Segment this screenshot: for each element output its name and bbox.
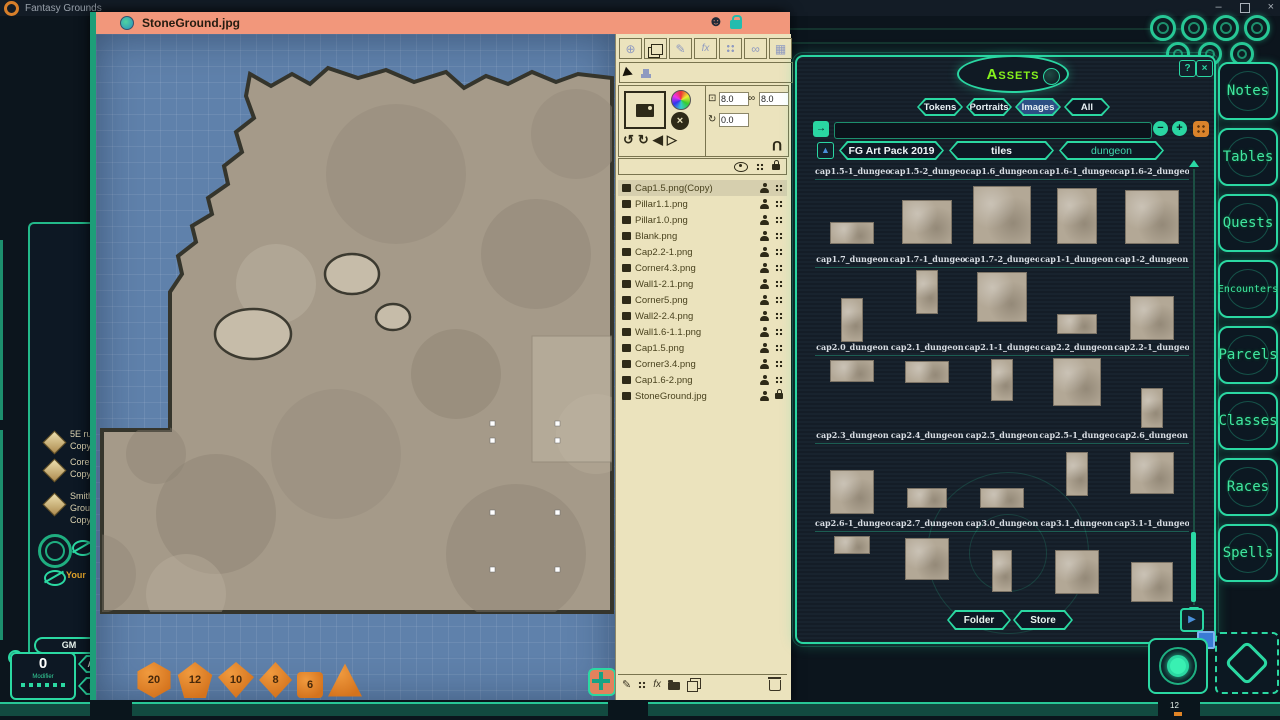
layer-grid-icon[interactable] <box>775 376 783 384</box>
stone-ground-map <box>96 34 615 704</box>
asset-label[interactable]: cap1.7_dungeon <box>815 254 890 267</box>
layer-grid-icon[interactable] <box>775 328 783 336</box>
layer-name: Cap1.5.png <box>635 343 756 354</box>
asset-label[interactable]: cap2.7_dungeon <box>890 518 965 531</box>
layer-row[interactable]: Blank.png <box>618 228 787 244</box>
grid-all-icon[interactable] <box>756 163 764 171</box>
layer-thumb-icon <box>622 312 631 320</box>
asset-thumbnail[interactable] <box>1053 358 1101 406</box>
undo-icon[interactable]: ↺ <box>623 132 634 148</box>
layer-name: Wall1.6-1.1.png <box>635 327 756 338</box>
store-button[interactable]: Store <box>1013 610 1073 630</box>
player-visible-icon[interactable] <box>760 247 769 257</box>
sidebar-button[interactable]: Races <box>1218 458 1278 516</box>
asset-label[interactable]: cap1.5-1_dungeo <box>815 166 890 179</box>
asset-thumbnail[interactable] <box>1141 388 1163 428</box>
cancel-icon[interactable]: × <box>671 112 689 130</box>
window-lock-icon[interactable] <box>730 20 742 29</box>
asset-thumbnail[interactable] <box>1066 452 1088 496</box>
layer-name: Pillar1.1.png <box>635 199 756 210</box>
layer-grid-icon[interactable] <box>775 184 783 192</box>
pointer-tool-icon[interactable] <box>623 66 635 78</box>
asset-thumbnail[interactable] <box>1057 314 1097 334</box>
asset-label[interactable]: cap1.6_dungeon <box>965 166 1040 179</box>
asset-tab[interactable]: All <box>1064 98 1110 116</box>
grid-tool-icon[interactable]: ▦ <box>769 38 792 59</box>
height-input[interactable] <box>759 92 789 106</box>
layer-grid-icon[interactable] <box>775 360 783 368</box>
sidebar-button[interactable]: Encounters <box>1218 260 1278 318</box>
layer-row[interactable]: Cap2.2-1.png <box>618 244 787 260</box>
layer-thumb-icon <box>622 392 631 400</box>
delete-layer-icon[interactable] <box>769 680 781 691</box>
asset-thumbnail[interactable] <box>1125 190 1179 244</box>
asset-label[interactable]: cap1.5-2_dungeo <box>890 166 965 179</box>
layer-name: Cap2.2-1.png <box>635 247 756 258</box>
asset-label[interactable]: cap1.7-2_dungeo <box>965 254 1040 267</box>
breadcrumb-item[interactable]: FG Art Pack 2019 <box>839 141 944 160</box>
layer-grid-icon[interactable] <box>775 264 783 272</box>
chat-line: Core <box>70 457 90 467</box>
asset-label[interactable]: cap1-2_dungeon <box>1114 254 1189 267</box>
sidebar-button[interactable]: Spells <box>1218 524 1278 582</box>
image-icon <box>636 104 654 117</box>
pointer-pad-button[interactable] <box>1215 632 1279 694</box>
asset-label[interactable]: cap3.1-1_dungeo <box>1114 518 1189 531</box>
sidebar-button[interactable]: Quests <box>1218 194 1278 252</box>
sidebar-button[interactable]: Notes <box>1218 62 1278 120</box>
asset-label[interactable]: cap2.6_dungeon <box>1114 430 1189 443</box>
player-visible-icon[interactable] <box>760 263 769 273</box>
chat-your-label: Your <box>66 570 86 580</box>
hotkey-slot-label: 12 <box>1170 701 1179 710</box>
layer-row[interactable]: Wall1.6-1.1.png <box>618 324 787 340</box>
die[interactable]: 20 <box>136 662 172 698</box>
asset-thumbnail[interactable] <box>1055 550 1099 594</box>
asset-label[interactable]: cap3.0_dungeon <box>965 518 1040 531</box>
lock-all-icon[interactable] <box>772 164 780 170</box>
player-visible-icon[interactable] <box>760 231 769 241</box>
asset-thumbnail[interactable] <box>1131 562 1173 602</box>
desktop-ring-icon[interactable] <box>1213 15 1239 41</box>
asset-label[interactable]: cap2.1_dungeon <box>890 342 965 355</box>
chat-line: Copy <box>70 441 91 451</box>
player-visible-icon[interactable] <box>760 359 769 369</box>
decor-line <box>0 430 3 640</box>
layer-row[interactable]: Cap1.5.png(Copy) <box>618 180 787 196</box>
die[interactable]: 12 <box>177 662 213 698</box>
zoom-in-button[interactable]: + <box>1172 121 1187 136</box>
asset-thumbnail[interactable] <box>992 550 1012 592</box>
layer-thumb-icon <box>622 360 631 368</box>
radial-menu-button[interactable] <box>1148 638 1208 694</box>
search-input[interactable] <box>834 122 1152 139</box>
remove-fx-icon[interactable]: fx <box>653 679 661 690</box>
map-window: StoneGround.jpg ☻ <box>96 12 790 704</box>
layer-thumb-icon <box>622 184 631 192</box>
snap-magnet-icon[interactable]: U <box>772 138 782 154</box>
redo-icon[interactable]: ↻ <box>638 132 649 148</box>
close-assets-button[interactable]: × <box>1196 60 1213 77</box>
minimize-button[interactable]: – <box>1215 1 1221 13</box>
layer-name: StoneGround.jpg <box>635 391 756 402</box>
layer-name: Cap1.6-2.png <box>635 375 756 386</box>
flip-vertical-icon[interactable]: ▷ <box>667 132 677 148</box>
hotkey-bar[interactable]: 12 <box>0 700 1280 720</box>
layer-name: Pillar1.0.png <box>635 215 756 226</box>
decor-line <box>0 240 3 420</box>
layer-row[interactable]: StoneGround.jpg <box>618 388 787 404</box>
layer-name: Wall1-2.1.png <box>635 279 756 290</box>
layer-thumb-icon <box>622 264 631 272</box>
sidebar-button[interactable]: Tables <box>1218 128 1278 186</box>
desktop-ring-icon[interactable] <box>1181 15 1207 41</box>
breadcrumb: ▲ FG Art Pack 2019 tiles dungeon <box>817 141 1164 160</box>
asset-thumbnail[interactable] <box>1057 188 1097 244</box>
layer-name: Corner3.4.png <box>635 359 756 370</box>
asset-search-row: → − + <box>813 121 1201 137</box>
pan-map-button[interactable] <box>588 668 615 696</box>
layer-thumb-icon <box>622 344 631 352</box>
chat-dice-dial[interactable] <box>38 534 72 568</box>
die[interactable]: 8 <box>259 662 292 698</box>
add-drawing-icon[interactable]: ✎ <box>622 678 631 691</box>
asset-label[interactable]: cap1-1_dungeon <box>1039 254 1114 267</box>
layer-name: Wall2-2.4.png <box>635 311 756 322</box>
folder-button[interactable]: Folder <box>947 610 1011 630</box>
layer-grid-icon[interactable] <box>775 280 783 288</box>
asset-tabs: Tokens Portraits Images All <box>917 98 1110 116</box>
assets-title: Assets <box>987 66 1040 83</box>
layer-thumb-icon <box>622 200 631 208</box>
player-visible-icon[interactable] <box>760 215 769 225</box>
image-tools-panel: ⊕ ✎ fx ∞ ▦ × ↺ ↻ ◀ ▷ <box>615 34 791 704</box>
modifier-box[interactable]: 0 Modifier <box>10 652 76 700</box>
asset-thumbnail[interactable] <box>834 536 870 554</box>
breadcrumb-item[interactable]: dungeon <box>1059 141 1164 160</box>
zoom-out-button[interactable]: − <box>1153 121 1168 136</box>
asset-thumbnail[interactable] <box>973 186 1031 244</box>
player-visible-icon[interactable] <box>760 375 769 385</box>
player-visibility-icon[interactable]: ☻ <box>708 13 724 30</box>
layer-name: Blank.png <box>635 231 756 242</box>
asset-thumbnail[interactable] <box>1130 452 1174 494</box>
layer-grid-icon[interactable] <box>775 344 783 352</box>
layer-grid-icon[interactable] <box>775 216 783 224</box>
dice-tray: 20 12 10 8 6 <box>136 662 362 698</box>
sidebar-button[interactable]: Classes <box>1218 392 1278 450</box>
layer-list: Cap1.5.png(Copy) Pillar1.1.png Pillar1.0… <box>618 180 787 404</box>
asset-thumbnail[interactable] <box>830 360 874 382</box>
layer-grid-icon[interactable] <box>775 248 783 256</box>
layer-row[interactable]: Wall2-2.4.png <box>618 308 787 324</box>
layer-thumb-icon <box>622 328 631 336</box>
layer-grid-icon[interactable] <box>775 200 783 208</box>
chat-line: Copy <box>70 515 91 525</box>
scrollbar-thumb[interactable] <box>1191 532 1196 602</box>
asset-tab[interactable]: Images <box>1015 98 1061 116</box>
stamp-tool-icon[interactable] <box>641 74 651 78</box>
asset-label[interactable]: cap1.7-1_dungeo <box>890 254 965 267</box>
layer-row[interactable]: Corner5.png <box>618 292 787 308</box>
hidden-roll-icon[interactable] <box>44 570 66 586</box>
image-layer-button[interactable] <box>624 91 666 129</box>
asset-thumbnail[interactable] <box>1130 296 1174 340</box>
player-visible-icon[interactable] <box>760 327 769 337</box>
chat-line: Copy <box>70 469 91 479</box>
asset-thumbnail[interactable] <box>991 359 1013 401</box>
folder-icon[interactable] <box>668 682 680 690</box>
asset-label[interactable]: cap1.6-1_dungeo <box>1039 166 1114 179</box>
map-canvas[interactable]: 20 12 10 8 6 <box>96 34 615 704</box>
maximize-button[interactable] <box>1240 3 1250 13</box>
asset-label[interactable]: cap2.6-1_dungeo <box>815 518 890 531</box>
layer-thumb-icon <box>622 376 631 384</box>
modifier-value: 0 <box>12 654 74 674</box>
thumbnail-view-button[interactable] <box>1193 121 1209 137</box>
map-title: StoneGround.jpg <box>142 16 240 30</box>
sidebar-button[interactable]: Parcels <box>1218 326 1278 384</box>
player-visible-icon[interactable] <box>760 199 769 209</box>
map-titlebar[interactable]: StoneGround.jpg ☻ <box>96 12 790 34</box>
width-input[interactable] <box>719 92 749 106</box>
duplicate-layer-icon[interactable] <box>687 681 698 692</box>
token-grid-icon[interactable] <box>719 38 742 59</box>
player-visible-icon[interactable] <box>760 311 769 321</box>
asset-thumbnail[interactable] <box>830 470 874 514</box>
asset-thumbnail[interactable] <box>905 361 949 383</box>
assets-orb-icon <box>1043 68 1060 85</box>
search-go-icon[interactable]: → <box>813 121 829 137</box>
chat-die-icon <box>42 458 66 482</box>
mask-tool-icon[interactable]: ∞ <box>744 38 767 59</box>
chat-line: 5E ru <box>70 429 92 439</box>
die[interactable]: 10 <box>218 662 254 698</box>
layer-thumb-icon <box>622 280 631 288</box>
asset-tab[interactable]: Tokens <box>917 98 963 116</box>
modifier-label: Modifier <box>12 674 74 680</box>
asset-thumbnail[interactable] <box>977 272 1027 322</box>
decor-line <box>790 42 1210 44</box>
layer-grid-icon[interactable] <box>775 296 783 304</box>
folder-up-button[interactable]: ▲ <box>817 142 834 159</box>
asset-thumbnail[interactable] <box>916 270 938 314</box>
layer-name: Cap1.5.png(Copy) <box>635 183 756 194</box>
draw-tool-icon[interactable]: ✎ <box>669 38 692 59</box>
asset-label[interactable]: cap2.5_dungeon <box>965 430 1040 443</box>
layer-thumb-icon <box>622 296 631 304</box>
asset-grid: cap1.5-1_dungeocap1.5-2_dungeocap1.6_dun… <box>815 166 1189 602</box>
asset-label[interactable]: cap2.0_dungeon <box>815 342 890 355</box>
layer-thumb-icon <box>622 232 631 240</box>
help-button[interactable]: ? <box>1179 60 1196 77</box>
asset-label[interactable]: cap2.4_dungeon <box>890 430 965 443</box>
asset-thumbnail[interactable] <box>902 200 952 244</box>
modifier-dots <box>21 683 65 687</box>
app-logo-icon <box>4 1 19 16</box>
layer-grid-icon[interactable] <box>775 312 783 320</box>
add-grid-icon[interactable] <box>638 681 646 689</box>
rotate-icon: ↻ <box>708 114 716 125</box>
asset-label[interactable]: cap1.6-2_dungeo <box>1114 166 1189 179</box>
layer-grid-icon[interactable] <box>775 232 783 240</box>
chat-line: Grou <box>70 503 90 513</box>
color-wheel-icon[interactable] <box>671 90 691 110</box>
layer-row[interactable]: Wall1-2.1.png <box>618 276 787 292</box>
chat-die-icon <box>42 430 66 454</box>
player-visible-icon[interactable] <box>760 279 769 289</box>
asset-label[interactable]: cap3.1_dungeon <box>1039 518 1114 531</box>
layer-properties: × ↺ ↻ ◀ ▷ ⊡ ∞ ↻ U <box>618 85 789 157</box>
asset-label[interactable]: cap2.3_dungeon <box>815 430 890 443</box>
layer-name: Corner4.3.png <box>635 263 756 274</box>
effects-tool-icon[interactable]: fx <box>694 38 717 59</box>
map-window-icon <box>120 16 134 30</box>
asset-thumbnail[interactable] <box>980 488 1024 508</box>
rotation-input[interactable] <box>719 113 749 127</box>
layer-list-header <box>618 158 787 175</box>
asset-label[interactable]: cap2.2_dungeon <box>1039 342 1114 355</box>
hotkey-tick <box>1174 712 1182 716</box>
desktop-ring-icon[interactable] <box>1150 15 1176 41</box>
app-title: Fantasy Grounds <box>25 3 102 14</box>
player-visible-icon[interactable] <box>760 295 769 305</box>
die[interactable] <box>328 662 362 698</box>
layer-thumb-icon <box>622 248 631 256</box>
layer-row[interactable]: Cap1.5.png <box>618 340 787 356</box>
globe-tool-icon[interactable]: ⊕ <box>619 38 642 59</box>
layer-row[interactable]: Pillar1.0.png <box>618 212 787 228</box>
close-button[interactable]: × <box>1268 1 1274 13</box>
player-visible-icon[interactable] <box>760 391 769 401</box>
visibility-all-icon[interactable] <box>734 162 748 172</box>
player-visible-icon[interactable] <box>760 183 769 193</box>
layer-actions-bar: ✎ fx <box>618 674 787 694</box>
breadcrumb-item[interactable]: tiles <box>949 141 1054 160</box>
asset-thumbnail[interactable] <box>841 298 863 342</box>
decor-line <box>790 28 1210 30</box>
layer-row[interactable]: Pillar1.1.png <box>618 196 787 212</box>
flip-horizontal-icon[interactable]: ◀ <box>653 132 663 148</box>
layer-lock-icon[interactable] <box>775 393 783 399</box>
chat-die-icon <box>42 492 66 516</box>
desktop-ring-icon[interactable] <box>1244 15 1270 41</box>
asset-label[interactable]: cap2.2-1_dungeo <box>1114 342 1189 355</box>
scroll-up-icon[interactable] <box>1189 160 1199 167</box>
layer-row[interactable]: Corner4.3.png <box>618 260 787 276</box>
asset-label[interactable]: cap2.5-1_dungeo <box>1039 430 1114 443</box>
asset-thumbnail[interactable] <box>907 488 947 508</box>
assets-window: Assets ? × Tokens Portraits Images All →… <box>795 55 1216 644</box>
link-dimensions-icon[interactable]: ∞ <box>748 93 755 104</box>
player-visible-icon[interactable] <box>760 343 769 353</box>
resize-icon: ⊡ <box>708 93 716 104</box>
layer-name: Corner5.png <box>635 295 756 306</box>
layer-row[interactable]: Cap1.6-2.png <box>618 372 787 388</box>
chat-line: Smith <box>70 491 93 501</box>
layer-row[interactable]: Corner3.4.png <box>618 356 787 372</box>
asset-tab[interactable]: Portraits <box>966 98 1012 116</box>
forward-button[interactable]: ▶ <box>1180 608 1204 632</box>
layers-tool-icon[interactable] <box>644 38 667 59</box>
asset-thumbnail[interactable] <box>830 222 874 244</box>
hidden-roll-icon[interactable] <box>72 540 94 556</box>
layer-thumb-icon <box>622 216 631 224</box>
die[interactable]: 6 <box>297 672 323 698</box>
asset-label[interactable]: cap2.1-1_dungeo <box>965 342 1040 355</box>
asset-thumbnail[interactable] <box>905 538 949 580</box>
